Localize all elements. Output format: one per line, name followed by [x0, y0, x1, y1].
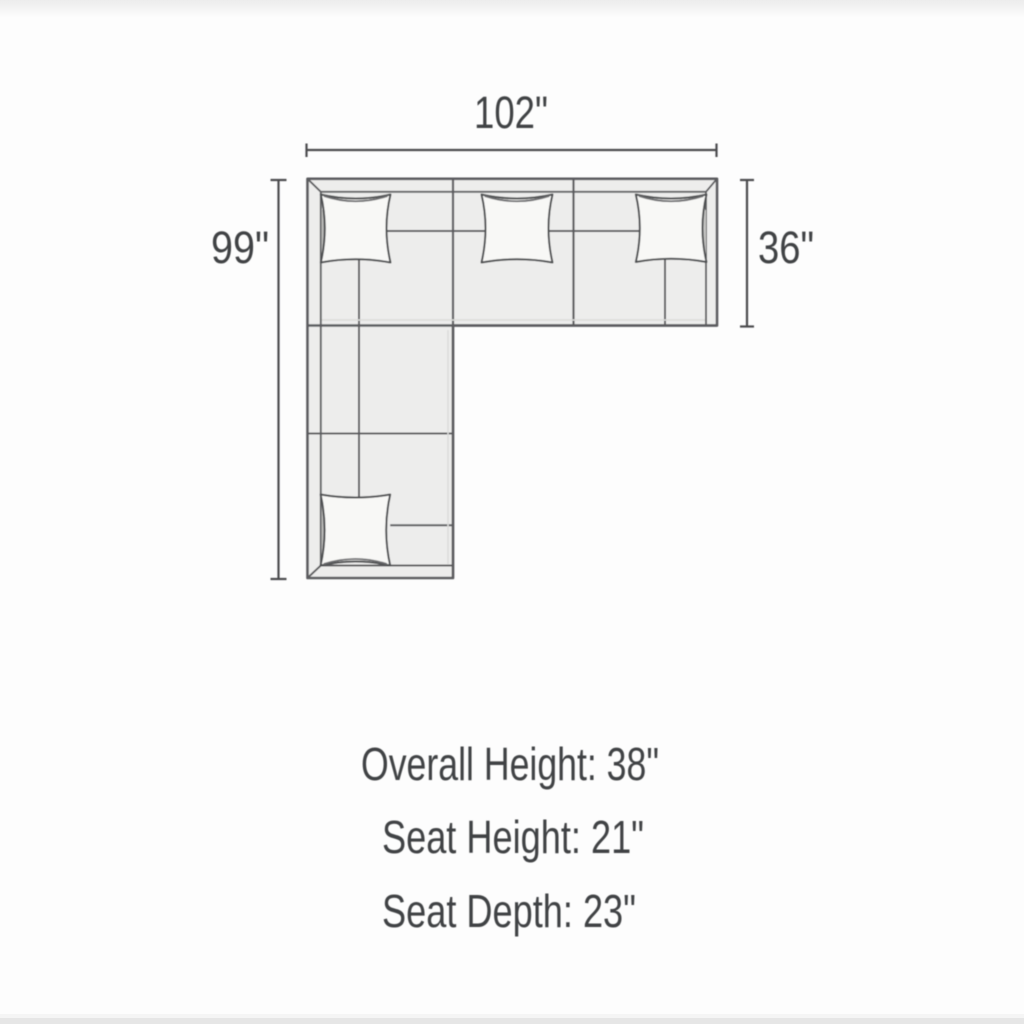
svg-text:Seat Height: 21": Seat Height: 21" [382, 811, 644, 863]
svg-text:Overall Height: 38": Overall Height: 38" [361, 738, 659, 790]
svg-text:102": 102" [474, 87, 548, 138]
svg-text:Seat Depth: 23": Seat Depth: 23" [382, 885, 636, 937]
svg-text:36": 36" [758, 222, 814, 273]
svg-text:99": 99" [211, 222, 269, 273]
